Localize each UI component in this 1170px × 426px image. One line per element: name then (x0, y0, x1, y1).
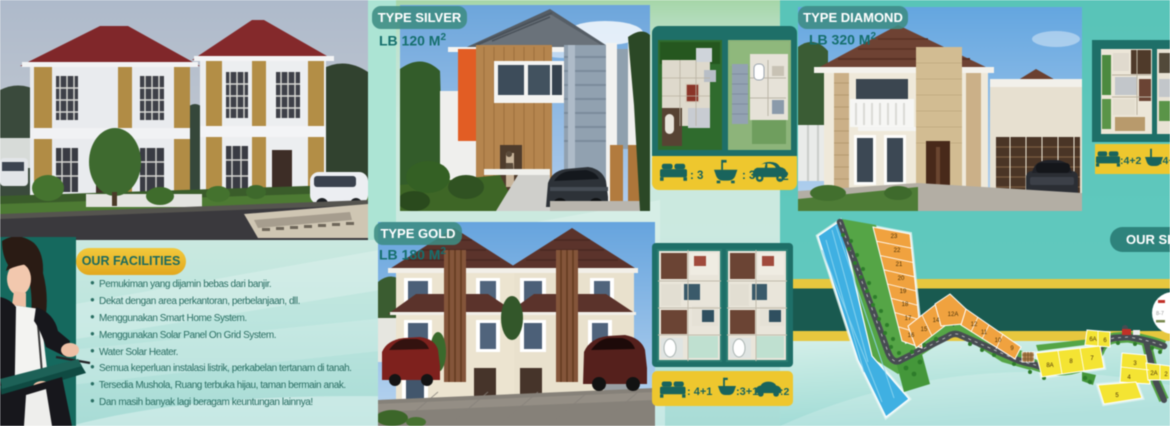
svg-text:22: 22 (894, 248, 901, 254)
svg-text::2: :2 (780, 386, 789, 398)
svg-text:12: 12 (971, 322, 978, 328)
svg-text::3+1: :3+1 (736, 386, 758, 398)
svg-text:21: 21 (896, 262, 903, 268)
svg-text::2: :2 (778, 169, 789, 183)
svg-text:10: 10 (995, 338, 1002, 344)
svg-text::4+2: :4+2 (1159, 155, 1170, 167)
svg-text:23: 23 (891, 234, 898, 240)
svg-text:2A: 2A (1150, 371, 1157, 377)
svg-text:17: 17 (905, 316, 912, 322)
svg-text:20: 20 (898, 276, 905, 282)
svg-text:: 3: : 3 (690, 170, 703, 182)
svg-text:12A: 12A (948, 312, 959, 318)
svg-text:15: 15 (921, 327, 928, 333)
svg-text:14: 14 (933, 318, 940, 324)
svg-text:11: 11 (981, 330, 988, 336)
svg-text::4+2: :4+2 (1120, 155, 1141, 167)
svg-text:19: 19 (900, 289, 907, 295)
svg-text:6A: 6A (1089, 337, 1096, 343)
svg-text:: 4+1: : 4+1 (687, 386, 712, 398)
svg-text:8-7: 8-7 (1156, 311, 1164, 317)
svg-text:18: 18 (902, 302, 909, 308)
svg-text:8A: 8A (1046, 363, 1053, 369)
svg-text:16: 16 (908, 333, 915, 339)
